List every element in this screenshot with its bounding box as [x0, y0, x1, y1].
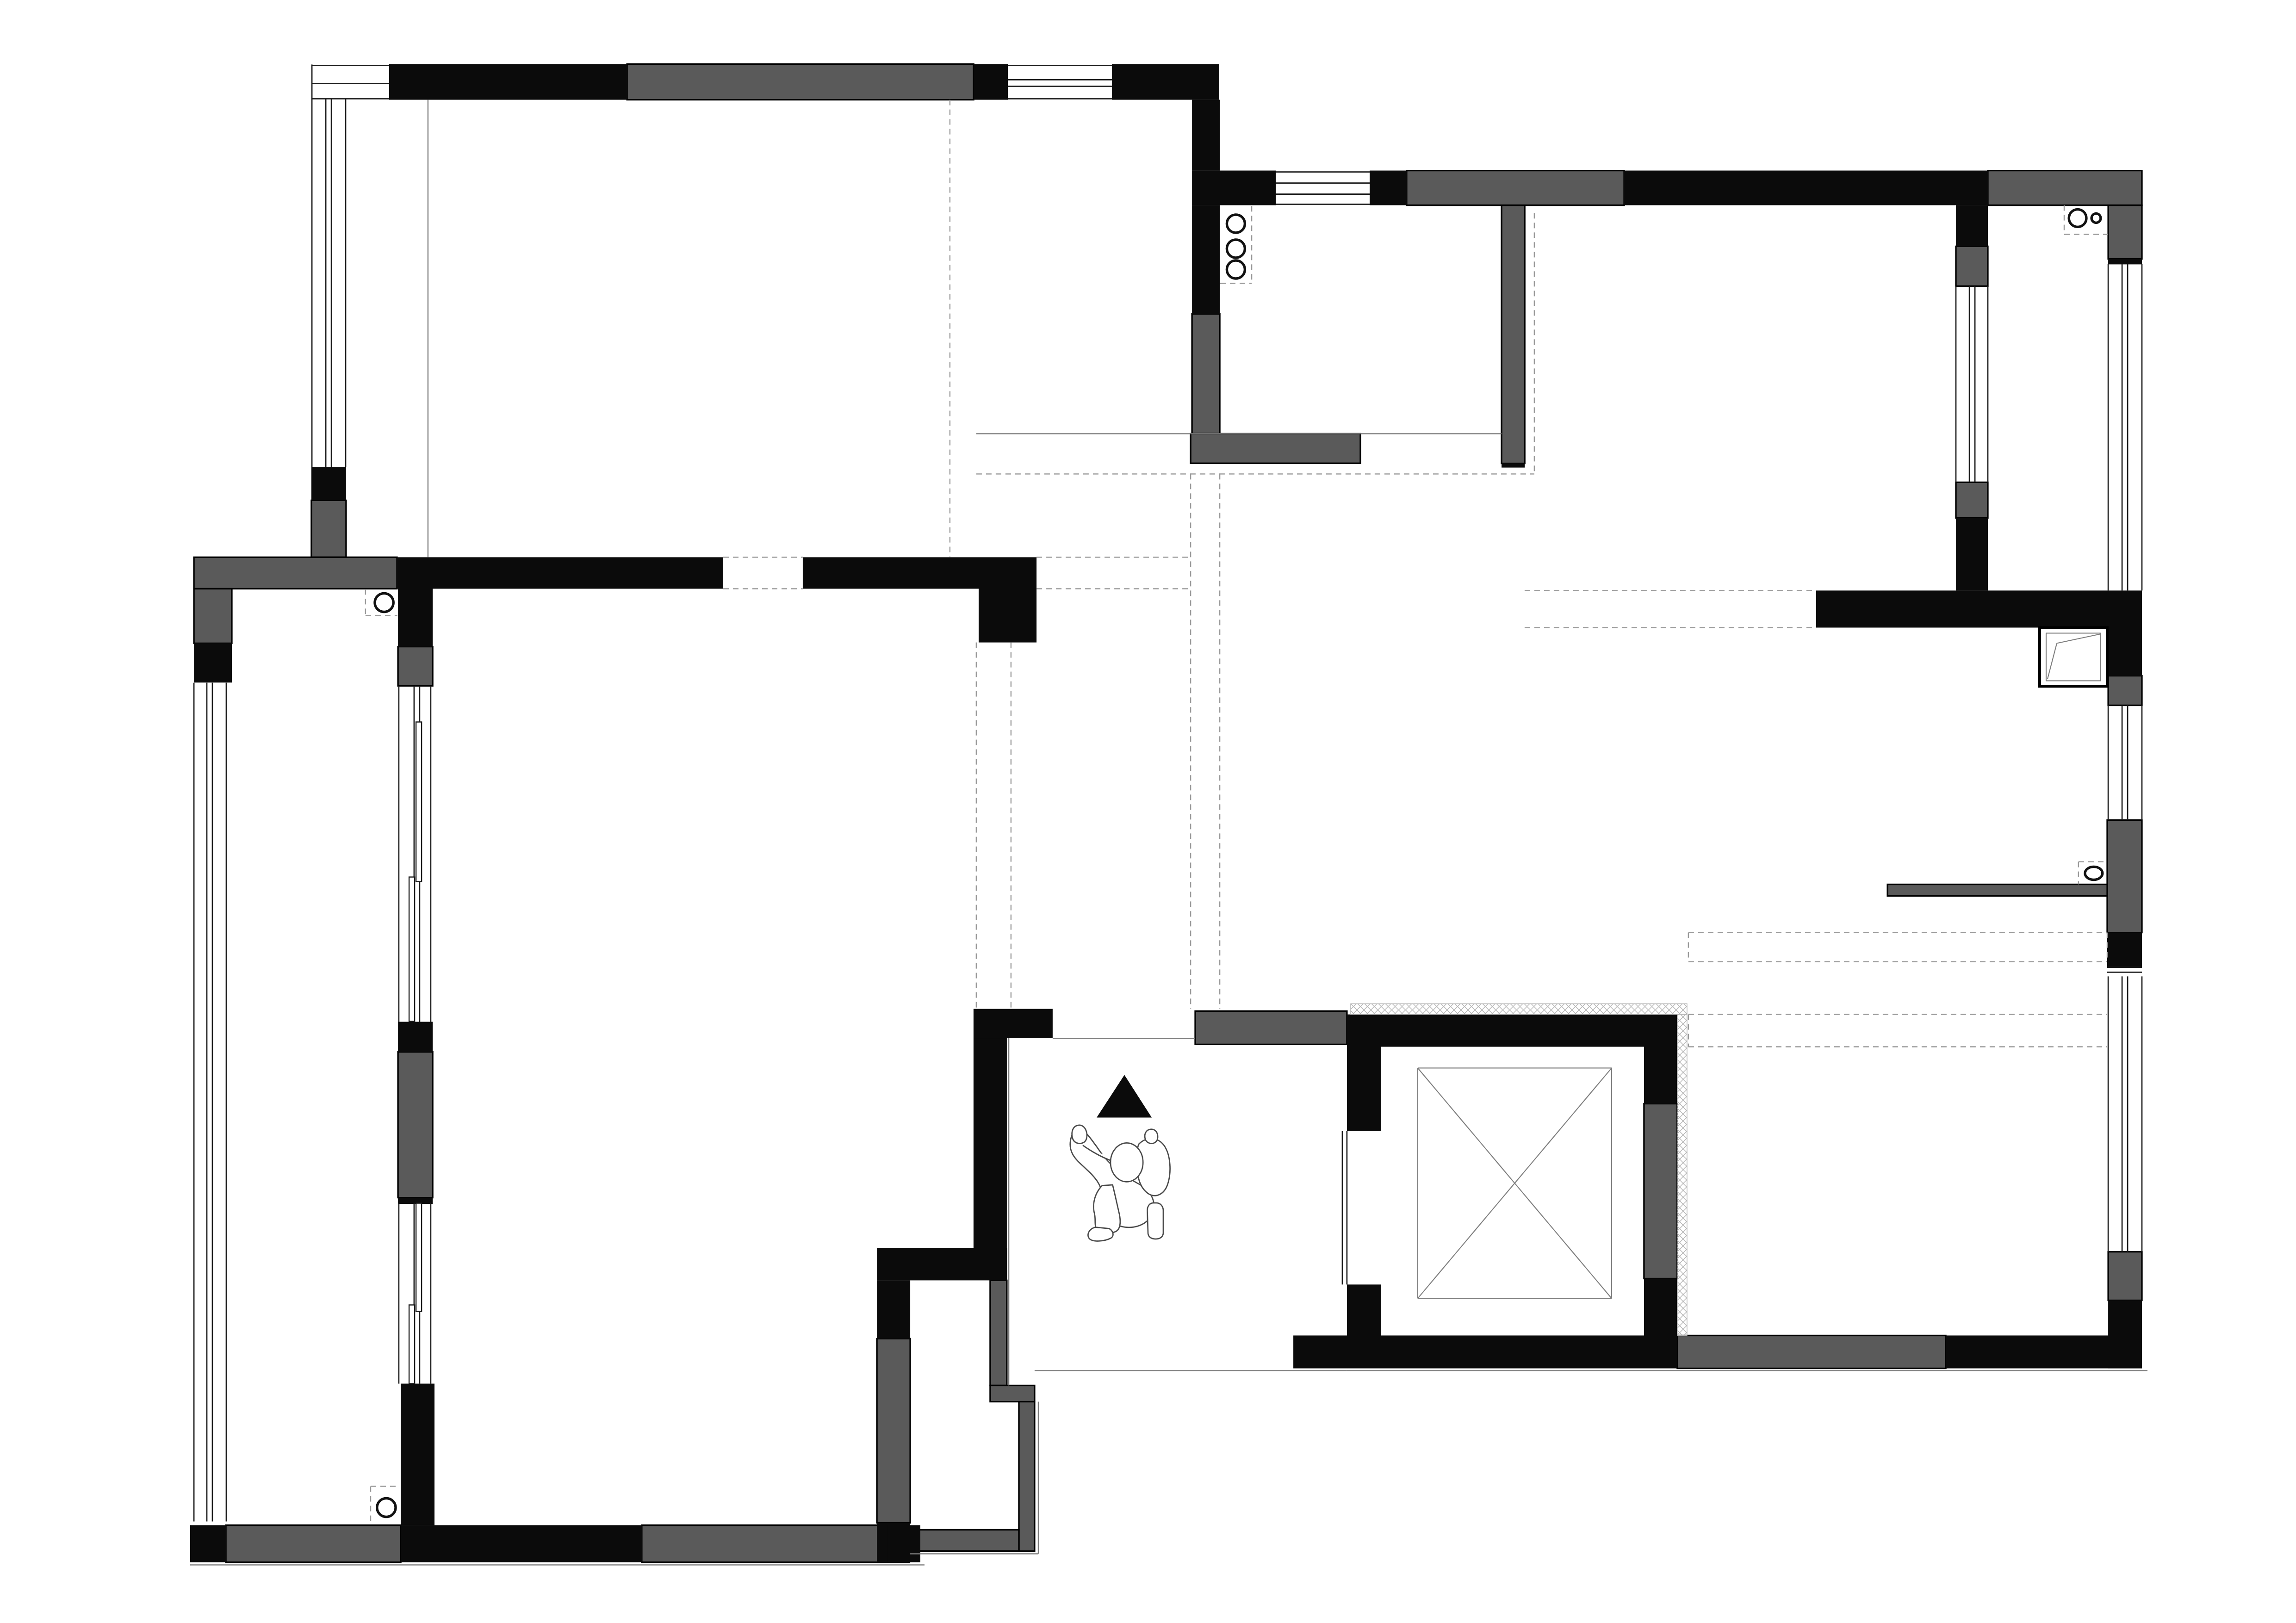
entry-direction-arrow-item — [1097, 1075, 1152, 1117]
plumbing-circles-item — [1227, 240, 1245, 258]
walls-gray-item — [1956, 246, 1988, 286]
person-figure — [1070, 1125, 1170, 1241]
sliding-door-leaves-item — [409, 877, 415, 1022]
walls-gray-item — [1195, 1011, 1347, 1044]
walls-black-item — [1370, 171, 1407, 205]
walls-black-item — [877, 1280, 910, 1338]
walls-gray-item — [877, 1338, 910, 1523]
person-figure-item — [1072, 1125, 1087, 1144]
walls-black-item — [2108, 259, 2142, 264]
walls-black-item — [389, 64, 627, 100]
walls-black-item — [397, 557, 723, 588]
walls-black-item — [1347, 1284, 1381, 1335]
walls-black-item — [311, 467, 346, 500]
entry-direction-arrow — [1097, 1075, 1152, 1117]
walls-black-item — [877, 1248, 1007, 1281]
walls-gray-item — [398, 1052, 433, 1198]
walls-black-item — [2108, 628, 2142, 676]
walls-gray-item — [1988, 171, 2142, 205]
walls-black-item — [1946, 1336, 2142, 1369]
walls-black-item — [398, 589, 433, 647]
plumbing-circles — [375, 210, 2103, 1517]
floor-plan-drawing — [0, 0, 2296, 1623]
sliding-door-leaves-item — [416, 722, 422, 882]
walls-gray-item — [194, 589, 232, 644]
person-figure-item — [1148, 1203, 1164, 1239]
elevator-hatch-band-item — [1351, 1004, 1687, 1015]
walls-black-item — [974, 1009, 1053, 1038]
walls-black-item — [1624, 171, 1988, 205]
walls-gray-item — [990, 1280, 1007, 1385]
elevator-hatch-band-item — [1677, 1015, 1687, 1336]
walls-black-item — [974, 64, 1008, 100]
person-head-item — [1111, 1143, 1143, 1182]
walls-gray-item — [990, 1386, 1035, 1402]
plumbing-circles-item — [1227, 260, 1245, 279]
walls-black-item — [398, 1022, 433, 1052]
walls-gray-item — [1019, 1402, 1035, 1551]
plumbing-circles-item — [2091, 214, 2101, 223]
plumbing-circles-item — [1227, 215, 1245, 233]
walls-gray-item — [1644, 1104, 1677, 1279]
sliding-door-leaves-item — [416, 1203, 422, 1312]
window-lines — [194, 64, 2142, 1521]
walls-black-item — [398, 1198, 433, 1204]
appliance-box-item — [2040, 628, 2107, 687]
walls-black-item — [1112, 64, 1219, 100]
walls-gray-item — [398, 647, 433, 686]
walls-gray-item — [1191, 434, 1360, 463]
walls-gray-item — [2107, 820, 2142, 933]
projection-dashed-lines — [366, 100, 2108, 1522]
walls-gray-item — [642, 1525, 887, 1562]
walls-gray-item — [2108, 676, 2142, 706]
walls-gray-item — [226, 1525, 401, 1562]
walls-gray-item — [1677, 1336, 1946, 1369]
walls-black-item — [2107, 933, 2142, 967]
walls-black-item — [190, 1525, 226, 1562]
plan-layers — [190, 64, 2147, 1565]
walls-black-item — [1644, 1047, 1677, 1104]
plumbing-circles-item — [375, 593, 393, 612]
walls-black-item — [401, 1525, 642, 1562]
walls-black-item — [1502, 464, 1525, 468]
person-head — [1111, 1143, 1143, 1182]
walls-black-item — [1347, 1336, 1677, 1369]
appliance-box — [2040, 628, 2107, 687]
plumbing-circles-item — [2069, 210, 2086, 227]
walls-black-item — [1192, 205, 1220, 314]
walls-gray — [194, 64, 2142, 1562]
walls-black-item — [1192, 100, 1220, 171]
walls-gray-item — [2108, 205, 2142, 259]
elevator-hatch-band — [1351, 1004, 1687, 1336]
sliding-door-leaves-item — [409, 1305, 415, 1384]
floor-plan-sheet — [0, 0, 2296, 1623]
walls-black-item — [194, 643, 232, 682]
walls-black-item — [974, 1038, 1007, 1248]
walls-gray-item — [1407, 171, 1624, 205]
walls-gray-item — [627, 64, 974, 100]
walls-black-item — [887, 1525, 920, 1562]
walls-gray-item — [910, 1530, 1019, 1551]
walls-black-item — [1816, 590, 2142, 627]
walls-black-item — [1293, 1336, 1347, 1369]
walls-gray-item — [194, 557, 397, 588]
walls-black-item — [803, 557, 1036, 588]
walls-gray-item — [2108, 1252, 2142, 1301]
walls-gray-item — [1956, 482, 1988, 518]
walls-gray-item — [1192, 314, 1220, 434]
walls-gray-item — [311, 500, 346, 557]
person-figure-item — [1088, 1227, 1113, 1241]
walls-black-item — [1347, 1047, 1381, 1131]
person-figure-item — [1145, 1129, 1158, 1144]
walls-black-item — [1644, 1279, 1677, 1336]
walls-black-item — [1347, 1015, 1677, 1047]
walls-gray-item — [1502, 205, 1525, 464]
elevator-car-symbol — [1418, 1068, 1612, 1298]
walls-black-item — [401, 1384, 434, 1525]
plumbing-circles-item — [377, 1498, 396, 1517]
walls-black-item — [1192, 171, 1276, 205]
plumbing-circles-item — [2085, 867, 2103, 880]
walls-black-item — [979, 589, 1036, 643]
walls-black-item — [1956, 518, 1988, 591]
walls-black-item — [1956, 205, 1988, 247]
walls-gray-item — [1887, 885, 2107, 896]
